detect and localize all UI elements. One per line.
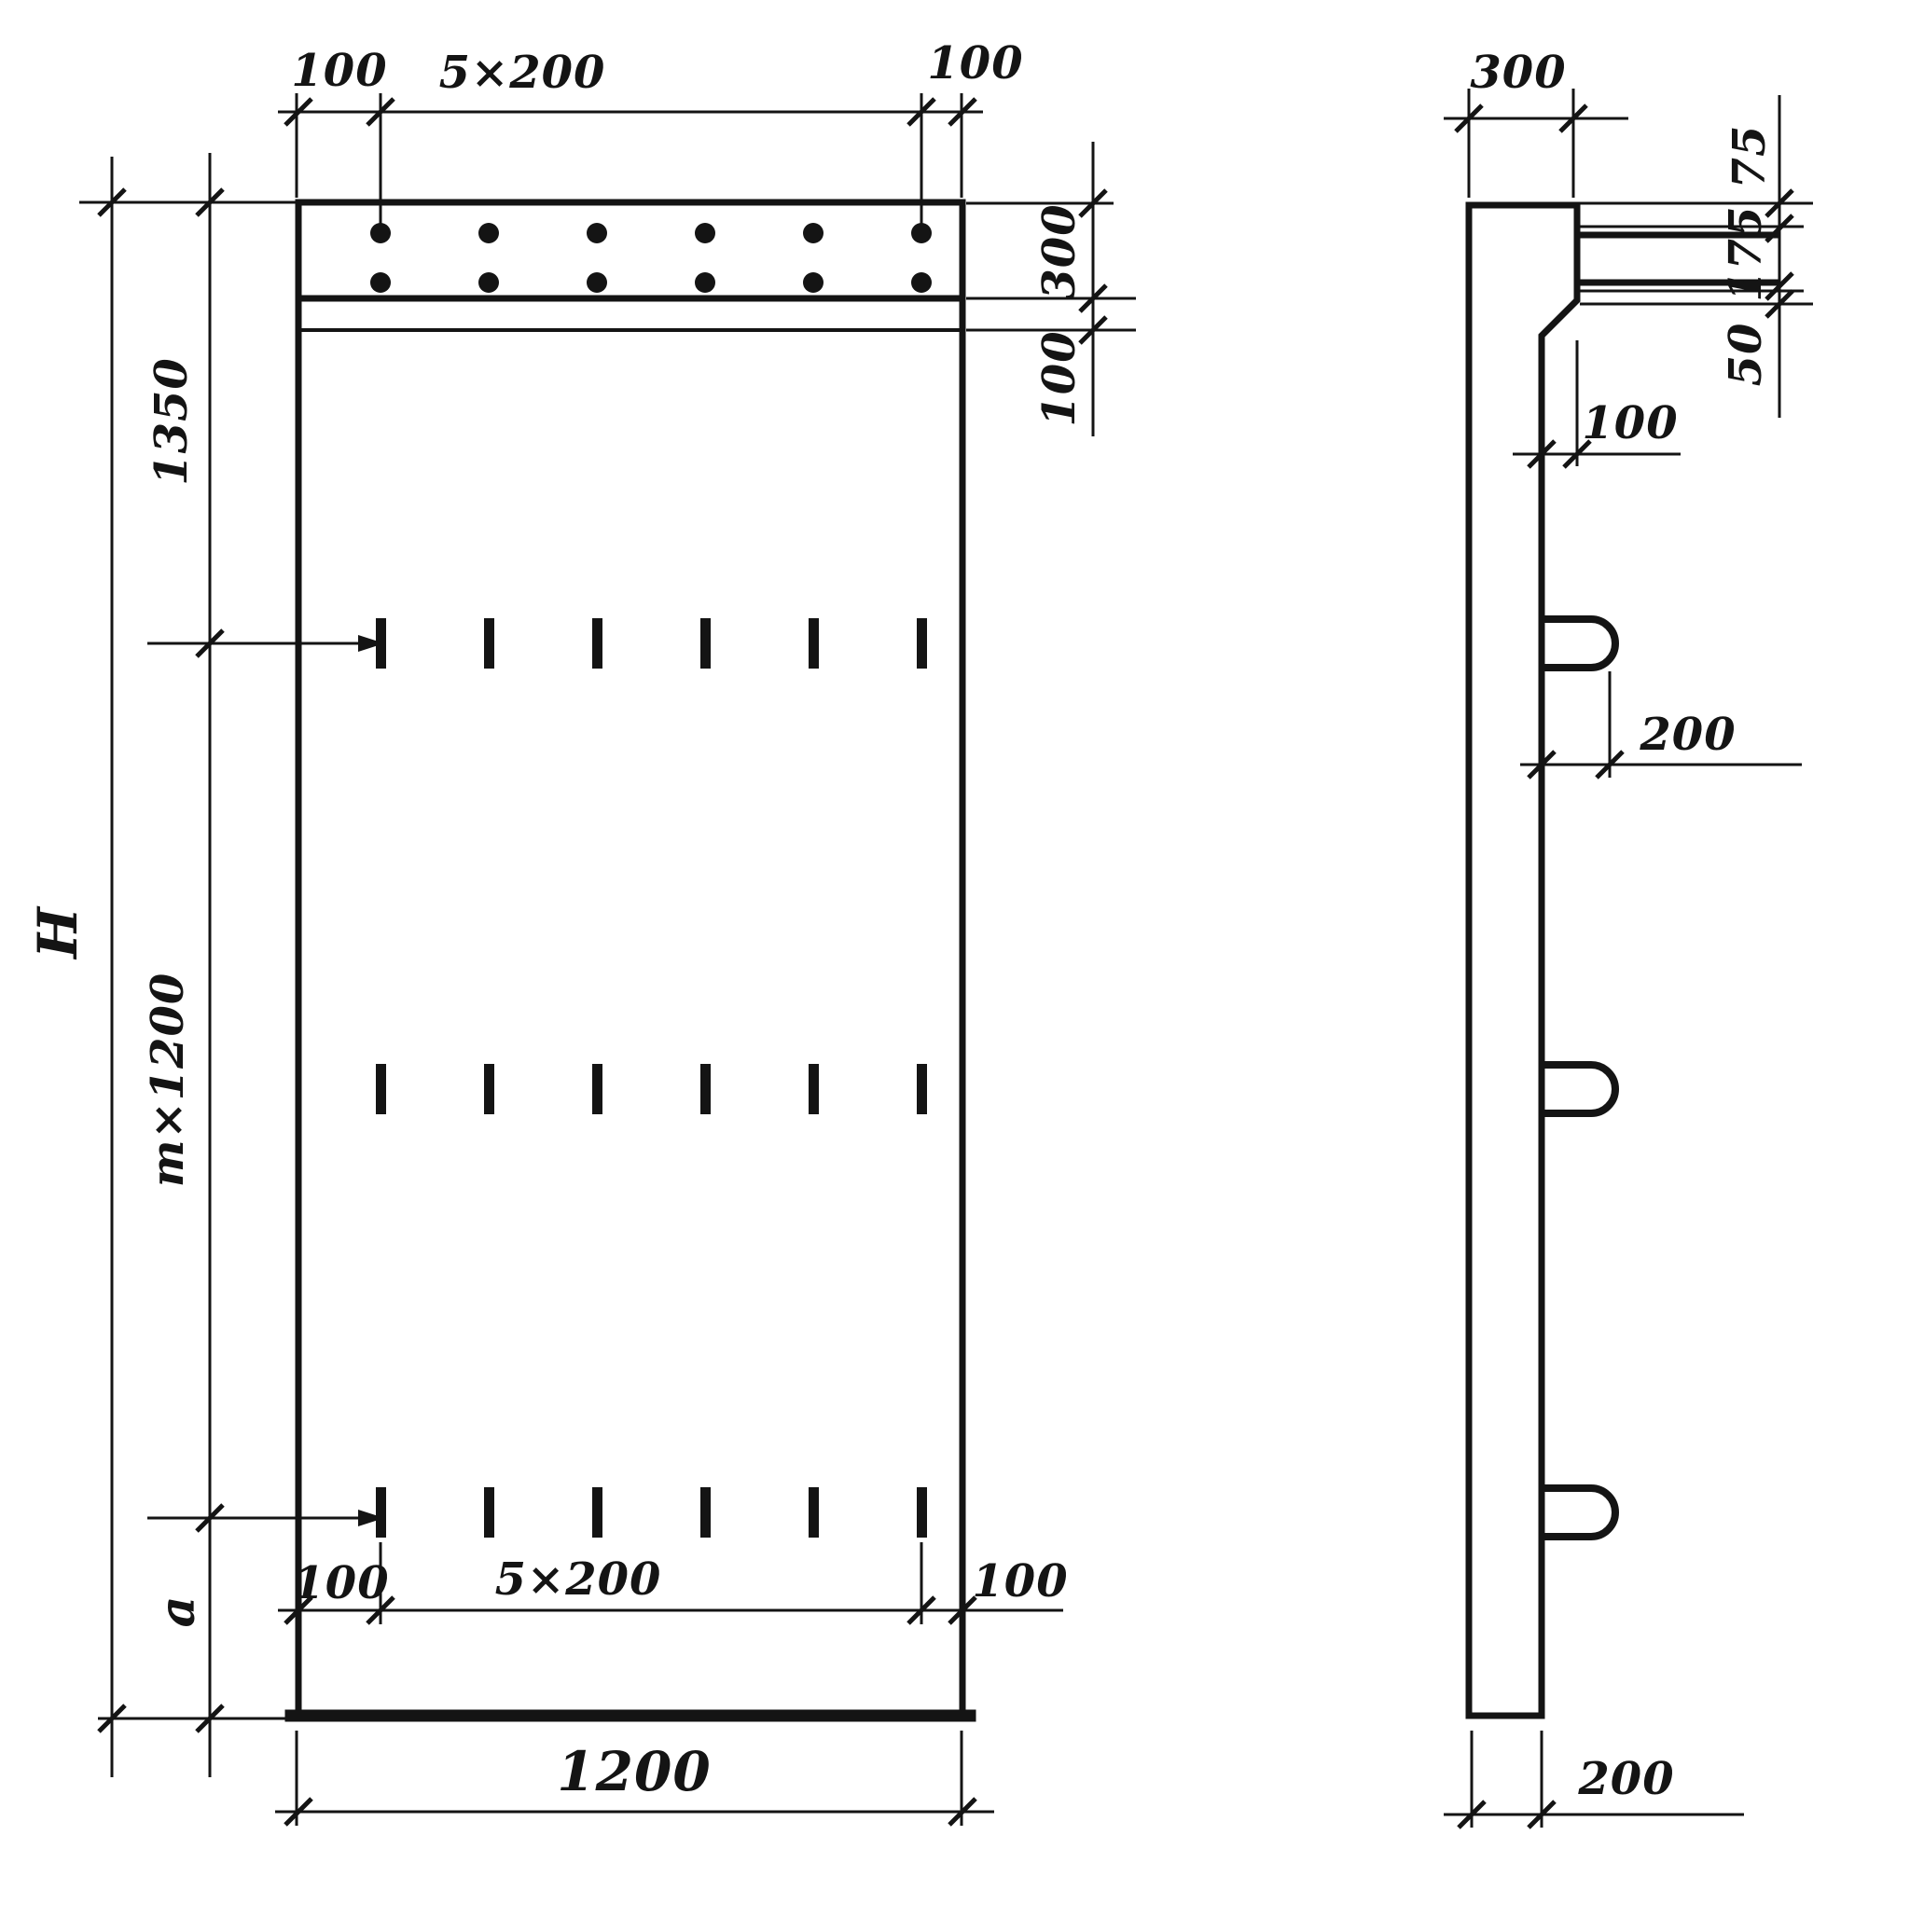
- dim-label-top-middle: 5×200: [439, 47, 606, 99]
- dim-label-overall-height: H: [26, 905, 90, 960]
- loop-end-dash: [700, 1064, 711, 1114]
- loop-end-dash-rows: [376, 618, 927, 1538]
- dim-label-bottom-right: 100: [972, 1555, 1068, 1608]
- loop-end-dash: [484, 618, 494, 669]
- dim-label-bar-bottom-offset: 50: [1720, 323, 1772, 387]
- technical-drawing-sheet: 100 5×200 100 300 100 1350 m×1200 H a: [0, 0, 1910, 1932]
- dim-label-top-right: 100: [927, 37, 1023, 90]
- loop-end-dash: [484, 1487, 494, 1538]
- loop-end-dash: [917, 1487, 927, 1538]
- anchor-dot: [911, 272, 932, 293]
- anchor-dot: [911, 223, 932, 243]
- loop-end-dash: [592, 618, 602, 669]
- loop-end-dash: [376, 1064, 386, 1114]
- lifting-loop: [1544, 619, 1615, 668]
- anchor-dot: [695, 223, 715, 243]
- front-view-dimensions: 100 5×200 100 300 100 1350 m×1200 H a: [26, 37, 1136, 1826]
- loop-end-dash: [592, 1487, 602, 1538]
- anchor-dot: [478, 223, 499, 243]
- dim-label-cap-height: 300: [1033, 203, 1086, 299]
- loop-end-dash: [917, 618, 927, 669]
- lifting-loop: [1544, 1065, 1615, 1113]
- anchor-dot: [803, 272, 824, 293]
- anchor-dot: [370, 272, 391, 293]
- loop-end-dash: [809, 1064, 819, 1114]
- loop-end-dash: [809, 618, 819, 669]
- loop-end-dash: [917, 1064, 927, 1114]
- dim-label-module: m×1200: [142, 973, 194, 1188]
- loop-end-dash: [700, 1487, 711, 1538]
- loop-end-dash: [700, 618, 711, 669]
- dim-label-top-left: 100: [291, 45, 387, 97]
- anchor-dot: [803, 223, 824, 243]
- anchor-dot-grid: [370, 223, 932, 293]
- dim-label-band-height: 100: [1033, 330, 1086, 426]
- dim-label-bar-spacing: 175: [1720, 205, 1772, 301]
- dim-label-bottom-thickness: 200: [1577, 1753, 1674, 1805]
- anchor-dot: [587, 272, 607, 293]
- anchor-dot: [695, 272, 715, 293]
- loop-end-dash: [484, 1064, 494, 1114]
- anchor-dot: [370, 223, 391, 243]
- loop-end-dash: [809, 1487, 819, 1538]
- panel-outline: [298, 202, 962, 1716]
- panel-drawing: 100 5×200 100 300 100 1350 m×1200 H a: [0, 0, 1910, 1932]
- anchor-dot: [587, 223, 607, 243]
- dim-label-overall-width: 1200: [557, 1740, 711, 1803]
- loop-end-dash: [376, 1487, 386, 1538]
- side-view-dimensions: 300 75 175 50 100 200 200: [1444, 47, 1813, 1828]
- loop-end-dash: [592, 1064, 602, 1114]
- anchor-dot: [478, 272, 499, 293]
- dim-label-bar-top-offset: 75: [1723, 125, 1776, 189]
- dim-label-bottom-offset: a: [149, 1595, 206, 1628]
- lifting-loops: [1544, 619, 1615, 1537]
- dim-label-bottom-middle: 5×200: [495, 1553, 662, 1606]
- dim-label-taper-offset: 100: [1582, 397, 1678, 449]
- dim-label-loop-projection: 200: [1639, 709, 1736, 761]
- dim-label-top-offset: 1350: [145, 357, 198, 486]
- dim-label-bottom-left: 100: [293, 1557, 389, 1609]
- lifting-loop: [1544, 1488, 1615, 1537]
- front-view: [291, 202, 970, 1716]
- dim-label-side-top-width: 300: [1470, 47, 1566, 99]
